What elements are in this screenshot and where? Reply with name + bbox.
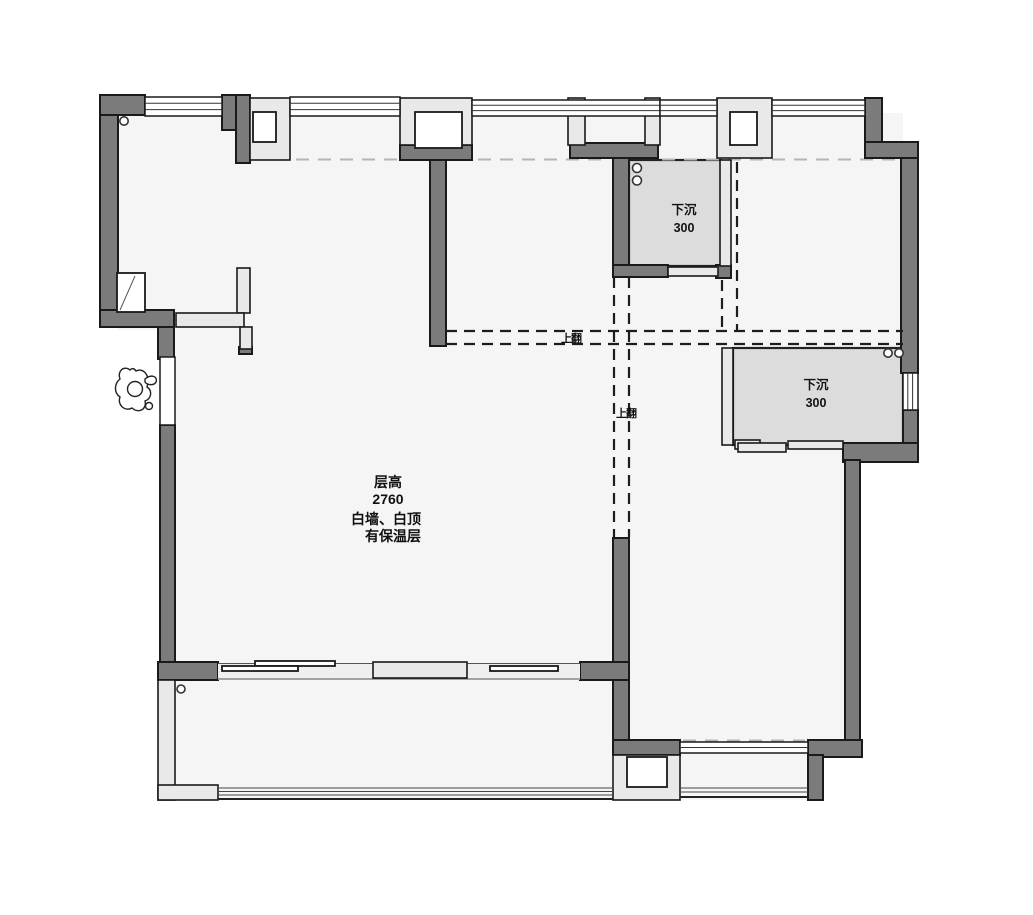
pipe-circle-sunken2-b bbox=[895, 349, 903, 357]
person-figure bbox=[115, 368, 156, 410]
person-arm bbox=[145, 376, 156, 384]
opening-left bbox=[160, 357, 175, 425]
pipe-circle-balcony bbox=[177, 685, 185, 693]
wall-left-mid bbox=[160, 425, 175, 665]
wall-balcony-foot bbox=[158, 785, 218, 800]
floor-plan: 层高 2760 白墙、白顶 有保温层 下沉 300 下沉 300 上翻 上翻 bbox=[0, 0, 1033, 915]
wall-left-step bbox=[158, 327, 174, 359]
sill-sunken1 bbox=[668, 267, 718, 276]
wall-slide-left-block bbox=[158, 662, 218, 680]
window-top-3 bbox=[472, 100, 660, 116]
label-floor-height-value: 2760 bbox=[372, 491, 403, 507]
wall-bottom-right-down bbox=[808, 755, 823, 800]
strip-room1-lower bbox=[240, 327, 252, 349]
strip-sunken2-left bbox=[722, 348, 733, 445]
wall-left-upper bbox=[100, 95, 118, 327]
floor-balcony-left bbox=[175, 663, 613, 800]
sliding-door-panel-2 bbox=[222, 666, 298, 671]
pipe-circle-sunken1-a bbox=[633, 164, 642, 173]
wall-top-column-1b bbox=[236, 95, 250, 163]
label-sunken2-value: 300 bbox=[806, 396, 827, 410]
floor-area bbox=[118, 113, 903, 800]
label-wall-note-line1: 白墙、白顶 bbox=[351, 511, 421, 527]
sill-sunken2-a bbox=[738, 443, 786, 452]
pane-box-2 bbox=[415, 112, 462, 148]
pipe-circle-room1 bbox=[120, 117, 128, 125]
label-sunken2-title: 下沉 bbox=[803, 377, 829, 392]
pipe-circle-sunken2-a bbox=[884, 349, 892, 357]
person-head bbox=[128, 382, 143, 397]
person-hand bbox=[146, 403, 153, 410]
label-floor-height-title: 层高 bbox=[374, 474, 402, 490]
wall-room-br-bottom bbox=[613, 740, 680, 755]
wall-sunken1-left bbox=[613, 158, 629, 277]
strip-sunken1-right bbox=[720, 160, 731, 266]
wall-room-br-left bbox=[613, 538, 629, 742]
wall-right-upper bbox=[901, 158, 918, 373]
wall-top-left-corner bbox=[100, 95, 145, 115]
window-top-5 bbox=[772, 100, 865, 116]
sliding-door-panel-4 bbox=[490, 666, 558, 671]
label-beam-2: 上翻 bbox=[616, 406, 637, 420]
sliding-door bbox=[218, 661, 580, 680]
label-sunken1-title: 下沉 bbox=[671, 202, 697, 217]
wall-partition-mid bbox=[430, 160, 446, 346]
floor-room-bottom-right bbox=[629, 445, 845, 755]
wall-sunken1-foot bbox=[613, 265, 668, 277]
window-right bbox=[903, 373, 918, 410]
pane-box-1 bbox=[253, 112, 276, 142]
pipe-circle-sunken1-b bbox=[633, 176, 642, 185]
wall-top-right-step bbox=[865, 142, 918, 158]
strip-room1-door bbox=[237, 268, 250, 313]
wall-balcony-left bbox=[158, 680, 175, 800]
label-beam-1: 上翻 bbox=[561, 331, 582, 345]
sill-sunken2-b bbox=[788, 441, 843, 449]
wall-room1-light bbox=[176, 313, 244, 327]
window-top-4 bbox=[660, 100, 717, 116]
wall-slide-right-block bbox=[580, 662, 629, 680]
label-sunken1-value: 300 bbox=[674, 221, 695, 235]
label-wall-note-line2: 有保温层 bbox=[365, 528, 421, 544]
floor-plan-drawing: 层高 2760 白墙、白顶 有保温层 下沉 300 下沉 300 上翻 上翻 bbox=[0, 0, 1033, 915]
sliding-door-panel-3 bbox=[373, 662, 467, 678]
wall-right-midblock bbox=[903, 410, 918, 445]
window-top-2 bbox=[290, 97, 400, 116]
pane-box-bottom bbox=[627, 757, 667, 787]
pane-box-3 bbox=[730, 112, 757, 145]
wall-right-lower bbox=[845, 460, 860, 743]
window-top-1 bbox=[145, 97, 222, 116]
